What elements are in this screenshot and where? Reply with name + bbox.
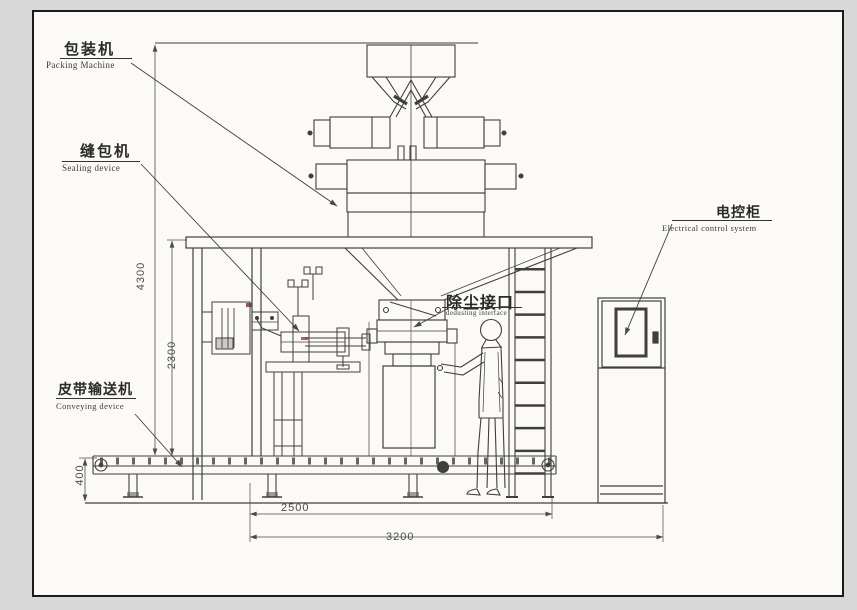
conveyor-leg xyxy=(123,474,143,497)
label-underline xyxy=(62,161,140,162)
sewing-machine xyxy=(202,267,370,456)
sealing-device-label-en: Sealing device xyxy=(62,163,120,173)
leader-dedusting xyxy=(414,309,447,327)
hanging-bag xyxy=(383,366,435,448)
control-cabinet xyxy=(598,298,665,503)
weigh-hoppers xyxy=(308,117,506,160)
conveyor-roller xyxy=(438,462,449,473)
cabinet-screen xyxy=(616,309,646,356)
control-cabinet-label-en: Electrical control system xyxy=(662,223,757,233)
bag-clamp-head xyxy=(367,300,457,456)
control-cabinet-label-zh: 电控柜 xyxy=(716,202,761,222)
conveyor-leg xyxy=(262,474,282,497)
leader-packing xyxy=(131,63,337,206)
dimension-lines xyxy=(79,45,663,542)
conveyor-label-en: Conveying device xyxy=(56,401,124,411)
machine-line-art xyxy=(0,0,857,610)
leader-lines xyxy=(131,63,672,467)
label-underline xyxy=(442,307,522,308)
packing-machine-label-en: Packing Machine xyxy=(46,60,115,70)
cabinet-handle xyxy=(653,332,658,343)
conveyor-leg xyxy=(403,474,423,497)
dim-span-inner: 2500 xyxy=(281,502,309,514)
label-underline xyxy=(60,58,132,59)
conveyor-label-zh: 皮带输送机 xyxy=(58,379,133,399)
dim-total-height: 4300 xyxy=(135,258,147,294)
sealing-device-label-zh: 缝包机 xyxy=(80,140,131,161)
dim-platform-height: 2300 xyxy=(166,337,178,373)
packing-machine-label-zh: 包装机 xyxy=(64,38,115,59)
dim-conveyor-height: 400 xyxy=(74,461,86,489)
belt-conveyor xyxy=(85,456,668,503)
leader-conveying xyxy=(135,414,182,467)
packing-machine-body xyxy=(309,160,523,237)
top-feed-hopper xyxy=(155,43,478,237)
dedusting-port-label-en: dedusting interface xyxy=(446,309,507,317)
label-underline xyxy=(56,398,136,399)
dim-span-outer: 3200 xyxy=(386,531,414,543)
label-underline xyxy=(672,220,772,221)
discharge-funnel xyxy=(345,248,577,456)
